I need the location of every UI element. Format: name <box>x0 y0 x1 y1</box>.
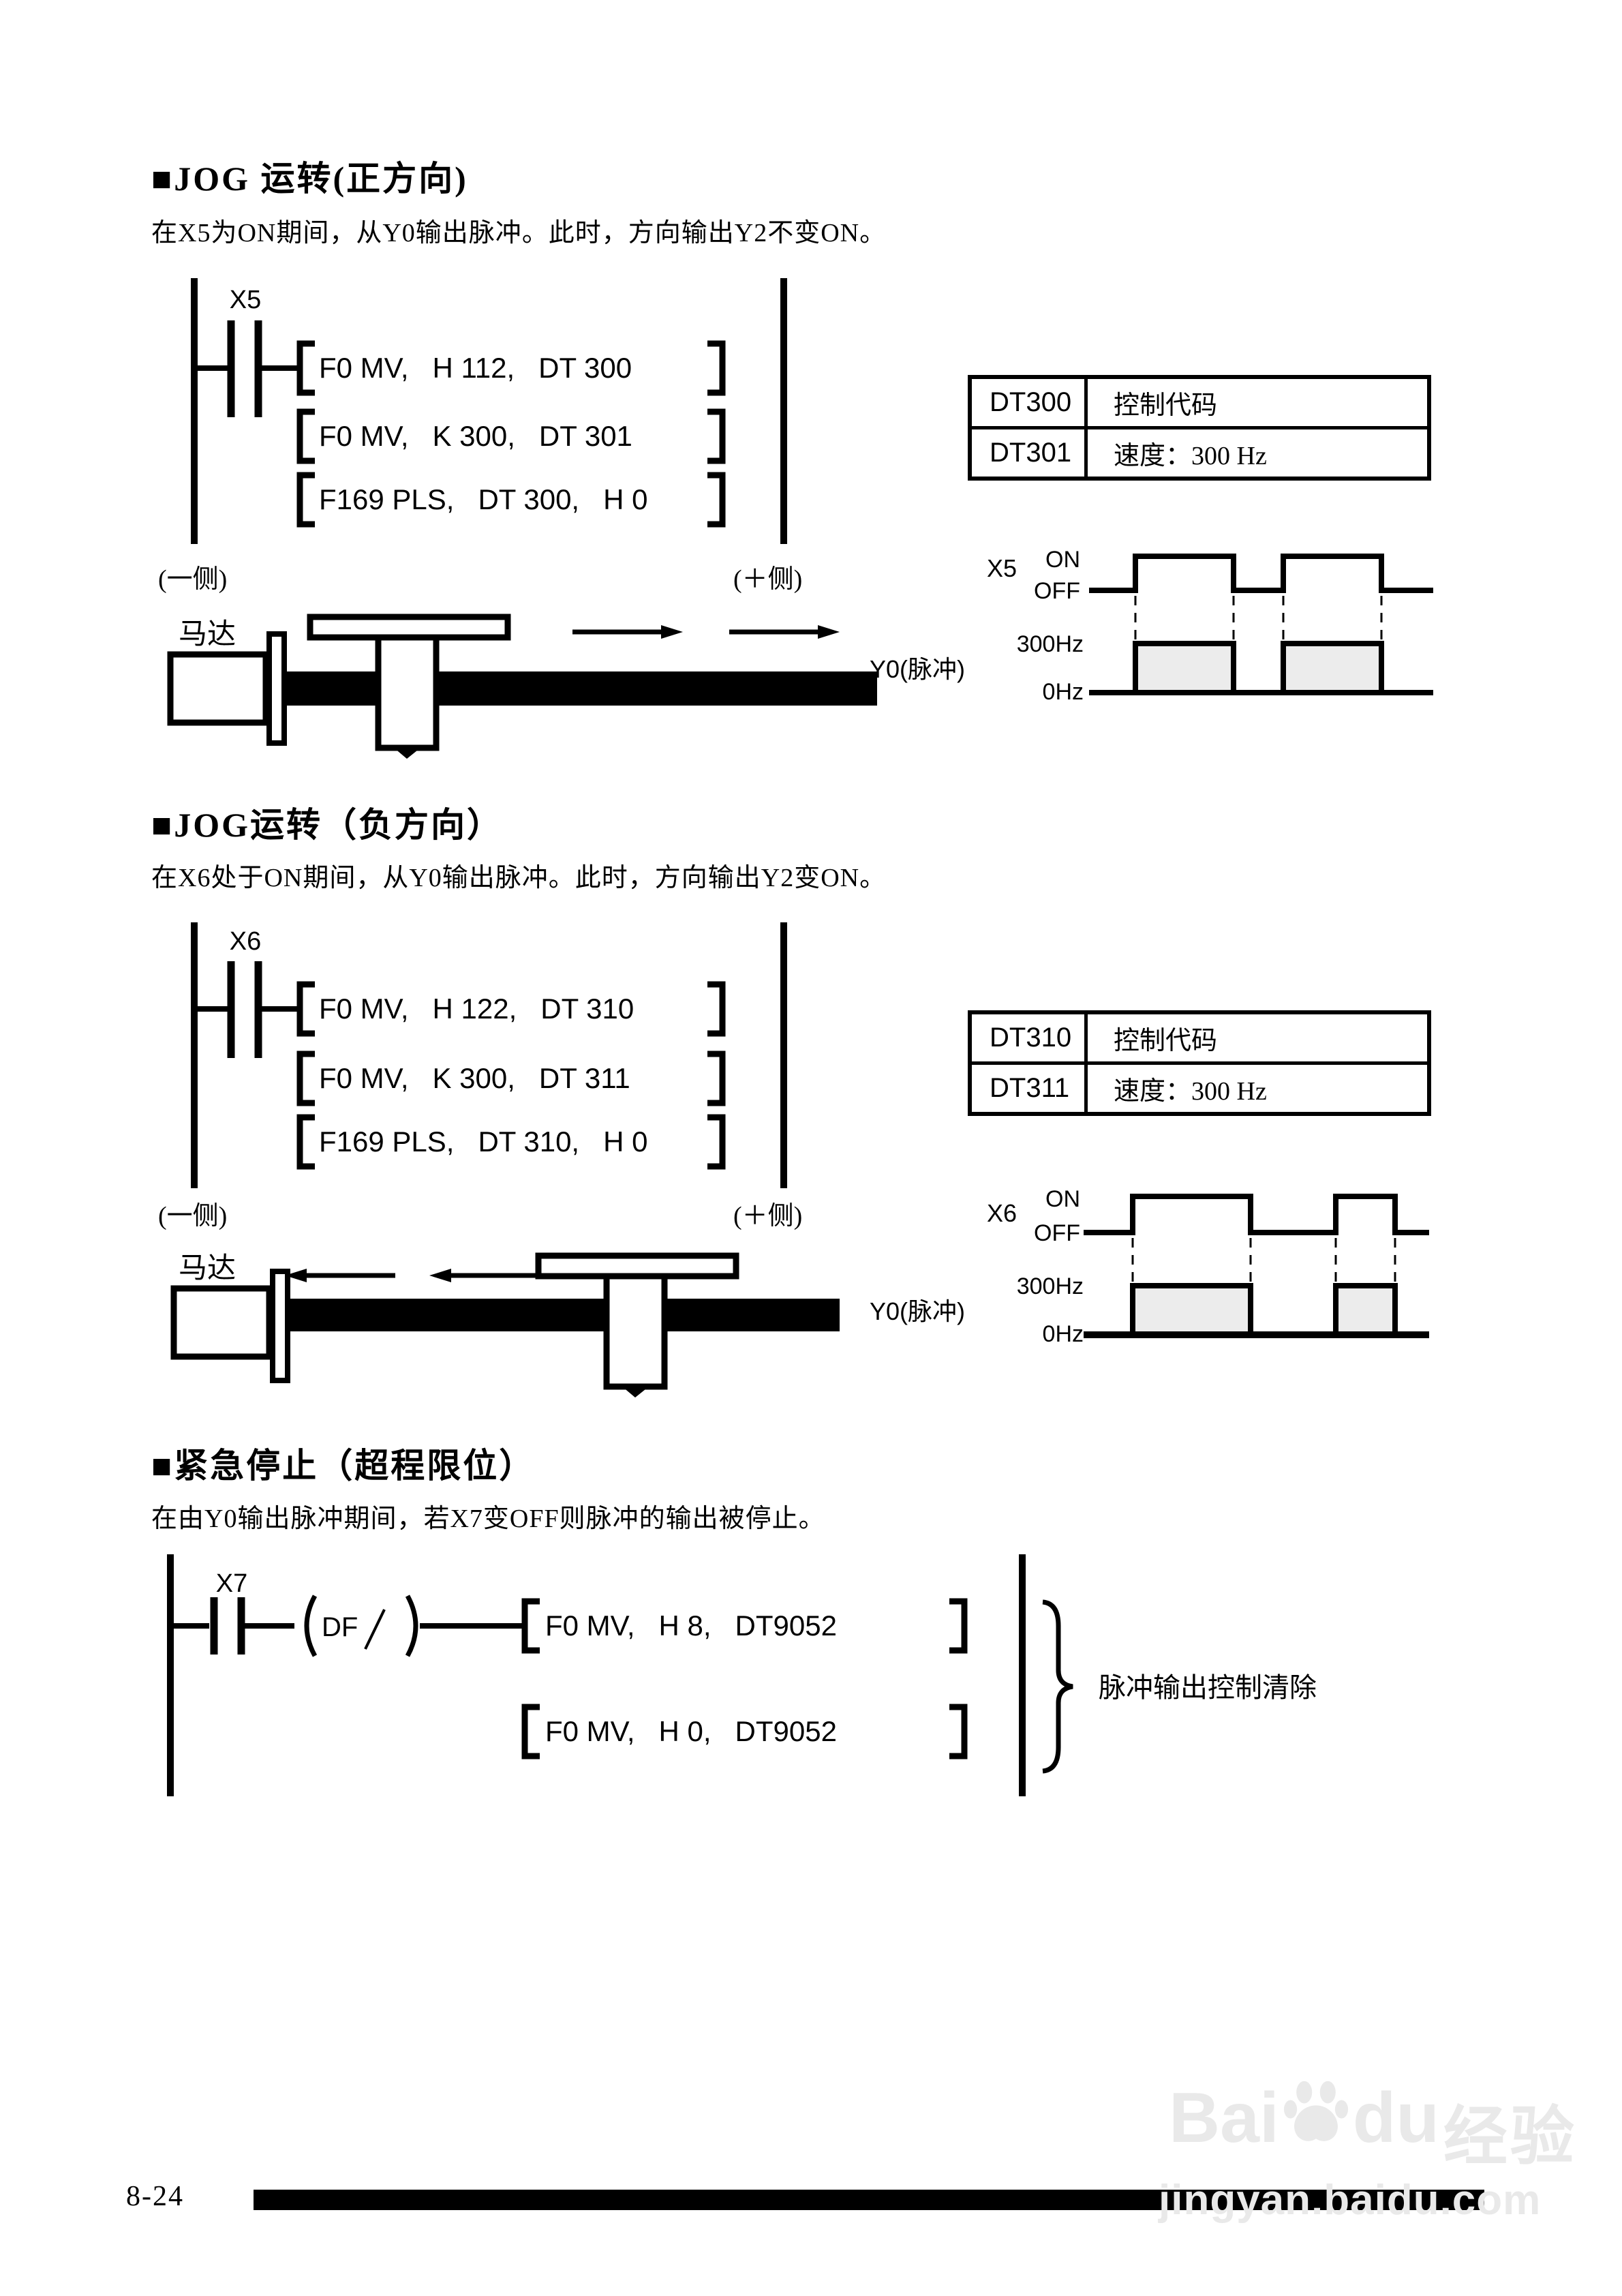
minus-side-label: (一侧) <box>158 558 227 595</box>
pulse-burst <box>1283 644 1381 693</box>
instruction-row: F0 MV, H 0, DT9052 <box>525 1707 964 1756</box>
instruction-text: F0 MV, H 122, DT 310 <box>319 993 634 1025</box>
page-number: 8-24 <box>126 2180 184 2213</box>
register-name: DT311 <box>972 1065 1088 1112</box>
motor-body <box>170 654 266 723</box>
contact-label-x5: X5 <box>230 286 261 314</box>
slash-icon <box>365 1610 384 1649</box>
table-row: DT301 速度：300 Hz <box>972 426 1427 477</box>
freq-low-label: 0Hz <box>1043 1321 1084 1347</box>
shaft <box>284 671 877 706</box>
register-table-dt300: DT300 控制代码 DT301 速度：300 Hz <box>968 375 1431 481</box>
motor-flange <box>273 1271 288 1380</box>
plus-side-label: (＋侧) <box>733 558 802 595</box>
contact-label-x6: X6 <box>230 927 261 956</box>
output-label: Y0(脉冲) <box>870 655 965 683</box>
instruction-row: F0 MV, H 8, DT9052 <box>525 1601 964 1650</box>
register-table-dt310: DT310 控制代码 DT311 速度：300 Hz <box>968 1010 1431 1116</box>
falling-edge-df-icon: DF <box>307 1596 522 1656</box>
no-contact-icon <box>170 1597 294 1655</box>
slider-bar <box>538 1256 736 1276</box>
table-row: DT311 速度：300 Hz <box>972 1061 1427 1112</box>
watermark-url: jingyan.baidu.com <box>1159 2176 1541 2224</box>
section-desc-emergency-stop: 在由Y0输出脉冲期间，若X7变OFF则脉冲的输出被停止。 <box>151 1497 825 1535</box>
section-title-jog-forward: ■JOG 运转(正方向) <box>151 151 468 200</box>
manual-page: ■JOG 运转(正方向) 在X5为ON期间，从Y0输出脉冲。此时，方向输出Y2不… <box>0 0 1622 2296</box>
signal-label: X5 <box>987 554 1017 582</box>
direction-arrow-right-icon <box>729 625 840 639</box>
timing-chart-x5: X5 ON OFF 300Hz 0Hz Y0(脉冲) <box>866 532 1458 709</box>
plus-side-label: (＋侧) <box>733 1194 802 1232</box>
instruction-text: F0 MV, H 8, DT9052 <box>545 1610 837 1642</box>
pulse-burst <box>1135 644 1234 693</box>
motor-slide-diagram-forward: 马达 <box>136 600 900 767</box>
shaft <box>288 1299 840 1331</box>
input-waveform <box>1089 556 1433 590</box>
motor-flange <box>269 634 284 743</box>
register-name: DT300 <box>972 379 1088 426</box>
instruction-row: F0 MV, K 300, DT 311 <box>300 1054 722 1103</box>
off-label: OFF <box>1034 578 1080 604</box>
register-desc: 控制代码 <box>1088 379 1427 426</box>
instruction-text: F0 MV, H 112, DT 300 <box>319 352 632 384</box>
freq-high-label: 300Hz <box>1017 631 1084 657</box>
ladder-diagram-emergency-stop: X7 DF F0 MV, H 8, DT9052 F0 MV, H 0, DT9… <box>136 1544 1431 1817</box>
register-name: DT301 <box>972 429 1088 477</box>
ladder-diagram-jog-reverse: X6 F0 MV, H 122, DT 310 F0 MV, K 300, DT… <box>164 917 811 1196</box>
motor-slide-diagram-reverse: 马达 <box>136 1241 900 1411</box>
brace-annotation: 脉冲输出控制清除 <box>1099 1672 1317 1703</box>
instruction-row: F169 PLS, DT 310, H 0 <box>300 1117 722 1166</box>
instruction-text: F169 PLS, DT 300, H 0 <box>319 483 647 515</box>
pulse-burst <box>1133 1286 1251 1335</box>
watermark-text: Bai <box>1169 2078 1279 2159</box>
slider-tip <box>622 1387 649 1398</box>
motor-label: 马达 <box>179 1253 236 1284</box>
output-label: Y0(脉冲) <box>870 1297 965 1325</box>
instruction-text: F0 MV, K 300, DT 301 <box>319 420 632 452</box>
pulse-burst <box>1336 1286 1395 1335</box>
timing-chart-x6: X6 ON OFF 300Hz 0Hz Y0(脉冲) <box>866 1159 1458 1350</box>
freq-high-label: 300Hz <box>1017 1273 1084 1299</box>
register-desc: 速度：300 Hz <box>1088 1065 1427 1112</box>
instruction-row: F0 MV, H 112, DT 300 <box>300 344 722 393</box>
no-contact-icon <box>194 320 300 417</box>
instruction-row: F0 MV, K 300, DT 301 <box>300 412 722 461</box>
direction-arrow-left-icon <box>429 1269 540 1282</box>
group-brace <box>1043 1602 1073 1771</box>
section-title-emergency-stop: ■紧急停止（超程限位） <box>151 1438 535 1487</box>
slider-tip <box>394 748 420 759</box>
table-row: DT310 控制代码 <box>972 1014 1427 1061</box>
watermark-text: du <box>1353 2078 1439 2159</box>
ladder-diagram-jog-forward: X5 F0 MV, H 112, DT 300 F0 MV, K 300, DT… <box>164 273 811 552</box>
section-desc-jog-forward: 在X5为ON期间，从Y0输出脉冲。此时，方向输出Y2不变ON。 <box>151 211 886 249</box>
on-label: ON <box>1045 1186 1080 1212</box>
section-title-jog-reverse: ■JOG运转（负方向） <box>151 798 503 847</box>
instruction-text: F169 PLS, DT 310, H 0 <box>319 1126 647 1158</box>
instruction-text: F0 MV, K 300, DT 311 <box>319 1062 630 1094</box>
slider-stem <box>607 1276 664 1387</box>
freq-low-label: 0Hz <box>1043 679 1084 705</box>
signal-label: X6 <box>987 1199 1017 1227</box>
motor-body <box>174 1288 269 1357</box>
off-label: OFF <box>1034 1220 1080 1246</box>
table-row: DT300 控制代码 <box>972 379 1427 426</box>
register-desc: 控制代码 <box>1088 1014 1427 1061</box>
edge-label: DF <box>322 1612 358 1642</box>
register-name: DT310 <box>972 1014 1088 1061</box>
contact-label-x7: X7 <box>216 1569 247 1598</box>
direction-arrow-left-icon <box>285 1269 395 1282</box>
baidu-paw-icon <box>1283 2078 1349 2143</box>
instruction-text: F0 MV, H 0, DT9052 <box>545 1715 837 1747</box>
slider-bar <box>310 617 508 637</box>
section-desc-jog-reverse: 在X6处于ON期间，从Y0输出脉冲。此时，方向输出Y2变ON。 <box>151 856 886 894</box>
slider-stem <box>378 637 436 748</box>
baidu-watermark-logo: Bai du 经验 <box>1169 2078 1577 2177</box>
minus-side-label: (一侧) <box>158 1194 227 1232</box>
watermark-text-cn: 经验 <box>1443 2085 1577 2177</box>
instruction-row: F169 PLS, DT 300, H 0 <box>300 475 722 524</box>
input-waveform <box>1084 1196 1429 1233</box>
instruction-row: F0 MV, H 122, DT 310 <box>300 984 722 1033</box>
register-desc: 速度：300 Hz <box>1088 429 1427 477</box>
no-contact-icon <box>194 961 300 1058</box>
motor-label: 马达 <box>179 619 236 650</box>
direction-arrow-right-icon <box>572 625 683 639</box>
on-label: ON <box>1045 547 1080 573</box>
